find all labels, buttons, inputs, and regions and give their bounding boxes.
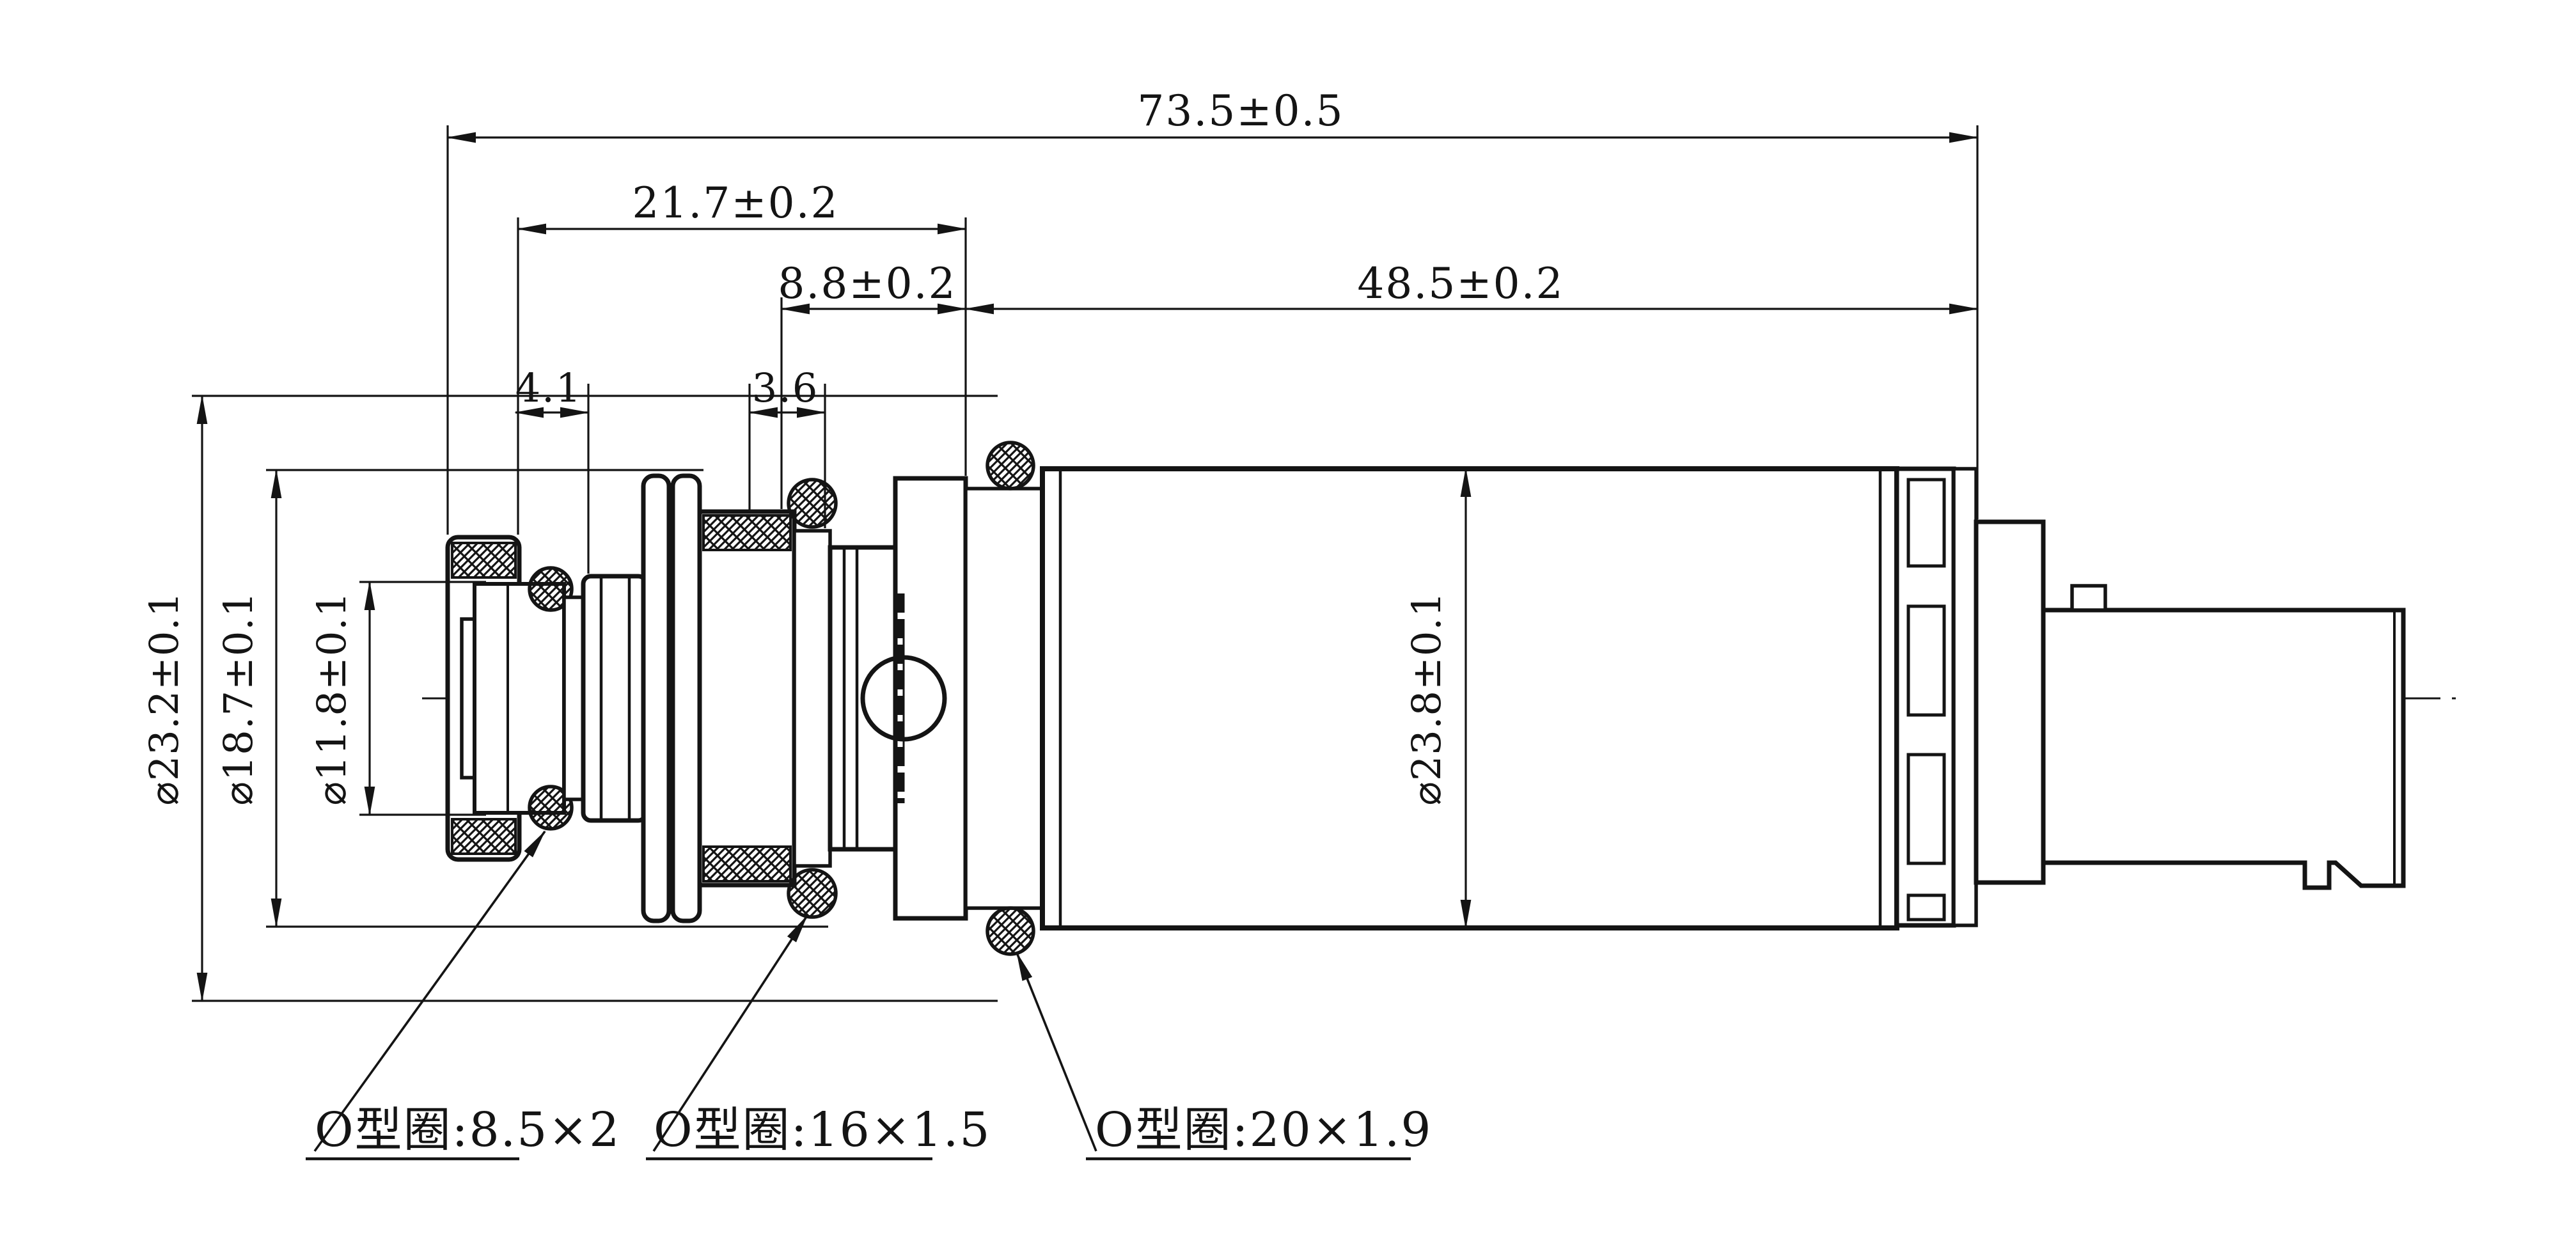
valve-technical-drawing: 73.5±0.5 21.7±0.2 8.8±0.2 48.5±0.2 4.1 3…: [0, 0, 2576, 1256]
oring-label-small: O型圈:8.5×2: [315, 1103, 620, 1158]
dim-dia-body: ⌀23.8±0.1: [1403, 592, 1450, 806]
oring-20x1-9-bottom: [987, 908, 1033, 954]
oring-20-hub: [966, 489, 1042, 908]
cap-seal-hatch-top: [452, 543, 515, 577]
rear-spacer-ring: [1954, 469, 1976, 925]
dim-mid-groove-width: 3.6: [752, 365, 819, 411]
spring-washer-rear: [673, 476, 700, 921]
dim-dia-tip: ⌀11.8±0.1: [308, 592, 355, 806]
cap-seal-hatch-bottom: [452, 819, 515, 854]
crimp-slot-4: [1908, 895, 1944, 920]
dim-mid-section-length: 8.8±0.2: [778, 259, 956, 308]
plunger-tip: [475, 584, 564, 813]
rear-flange: [1976, 522, 2043, 883]
dim-overall-length: 73.5±0.5: [1137, 86, 1344, 136]
dim-front-groove-width: 4.1: [515, 365, 583, 411]
sleeve-hatch-bottom: [703, 847, 790, 881]
shaft-neck: [564, 597, 583, 799]
drawing-sheet: 73.5±0.5 21.7±0.2 8.8±0.2 48.5±0.2 4.1 3…: [0, 0, 2576, 1256]
crimp-slot-3: [1908, 755, 1944, 863]
crimp-slot-2: [1908, 606, 1944, 715]
oring-16x1-5-top: [789, 480, 836, 527]
electrical-connector: [2043, 586, 2403, 888]
crimp-slot-1: [1908, 480, 1944, 566]
dim-dia-washer: ⌀18.7±0.1: [215, 592, 262, 806]
oring-20x1-9-top: [987, 443, 1033, 489]
dim-front-section-length: 21.7±0.2: [632, 178, 838, 228]
dim-dia-outer-left: ⌀23.2±0.1: [141, 592, 187, 806]
oring-label-medium: O型圈:16×1.5: [654, 1103, 991, 1158]
sleeve-hatch-top: [703, 515, 790, 550]
oring-16x1-5-bottom: [789, 870, 836, 917]
oring-label-large: O型圈:20×1.9: [1095, 1103, 1432, 1158]
oring-16-groove-land: [794, 531, 830, 866]
crimped-ring: [1897, 469, 1954, 925]
hatched-sleeve: [700, 512, 794, 885]
coil-housing: [1042, 469, 1897, 928]
connector-key-bump: [2072, 586, 2105, 610]
guide-cylinder: [583, 576, 646, 820]
dim-rear-section-length: 48.5±0.2: [1357, 259, 1564, 308]
spring-washer-front: [643, 476, 669, 921]
